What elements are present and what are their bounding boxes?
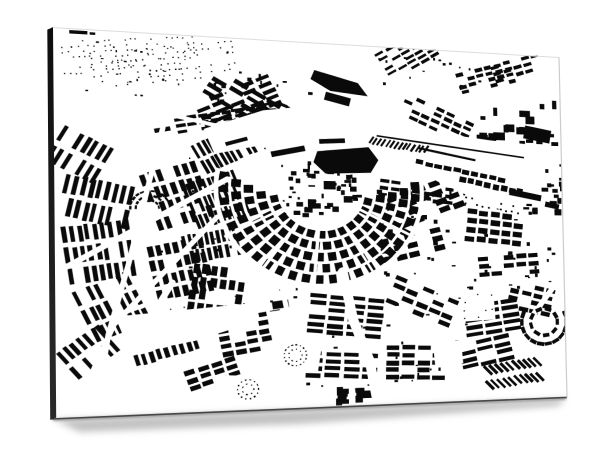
scene	[0, 0, 600, 464]
map-panel	[51, 27, 567, 419]
amsterdam-buildings-map	[51, 27, 567, 419]
